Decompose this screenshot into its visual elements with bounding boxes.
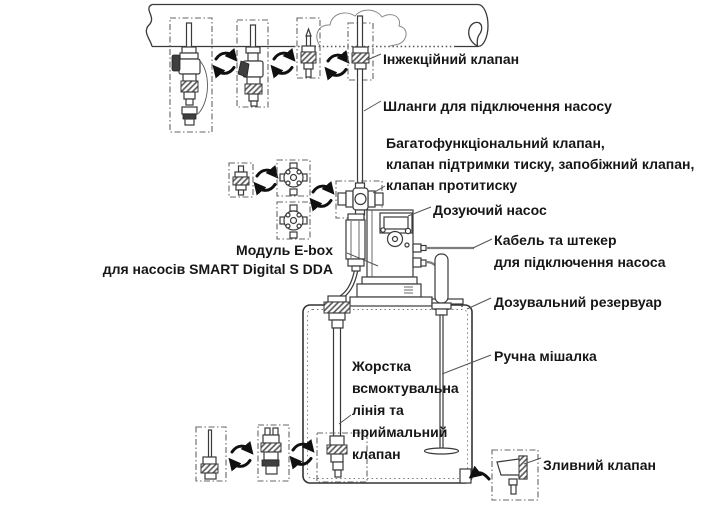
label-drain-valve: Зливний клапан [543, 455, 656, 475]
swap-arrows-icon [313, 186, 331, 206]
swap-arrows-icon [274, 53, 292, 73]
swap-arrows-icon [257, 170, 275, 190]
process-pipe [146, 5, 488, 47]
pump-connector [413, 244, 421, 252]
multifunction-valve-variant-c [277, 202, 310, 239]
suction-hose-curve [340, 271, 356, 298]
swap-arrows-icon [232, 446, 250, 466]
pump-hose [358, 69, 363, 183]
diagram-canvas: Інжекційний клапан Шланги для підключенн… [0, 0, 704, 528]
label-mixer: Ручна мішалка [494, 346, 597, 366]
label-ebox-module: Модуль E-box для насосів SMART Digital S… [100, 241, 333, 279]
swap-arrows-icon [216, 53, 234, 73]
label-multifunction-valve: Багатофункціональний клапан, клапан підт… [386, 133, 694, 196]
drain-arrow-icon [473, 473, 489, 479]
suction-variant-b [258, 425, 289, 481]
swap-arrows-icon [328, 55, 346, 75]
injection-valve-variant-a [170, 18, 212, 132]
mounting-plate [350, 297, 432, 306]
injection-valve-variant-b [237, 20, 268, 107]
pump-foot [362, 277, 417, 284]
multifunction-valve-variant-a [229, 163, 253, 197]
multifunction-valve-variant-b [277, 160, 310, 196]
label-injection-valve: Інжекційний клапан [383, 49, 519, 69]
label-reservoir: Дозувальний резервуар [494, 292, 662, 312]
suction-variant-a [196, 427, 226, 481]
injection-valve-variant-c [297, 18, 320, 78]
tank-drain-port [460, 469, 471, 483]
label-cable: Кабель та штекер для підключення насоса [494, 229, 666, 273]
mixer-handle [435, 254, 448, 303]
label-hoses: Шланги для підключення насосу [383, 96, 612, 116]
label-dosing-pump: Дозуючий насос [433, 200, 547, 220]
pump-connector [413, 258, 421, 267]
label-suction-line: Жорстка всмоктувальна лінія та приймальн… [352, 355, 459, 465]
